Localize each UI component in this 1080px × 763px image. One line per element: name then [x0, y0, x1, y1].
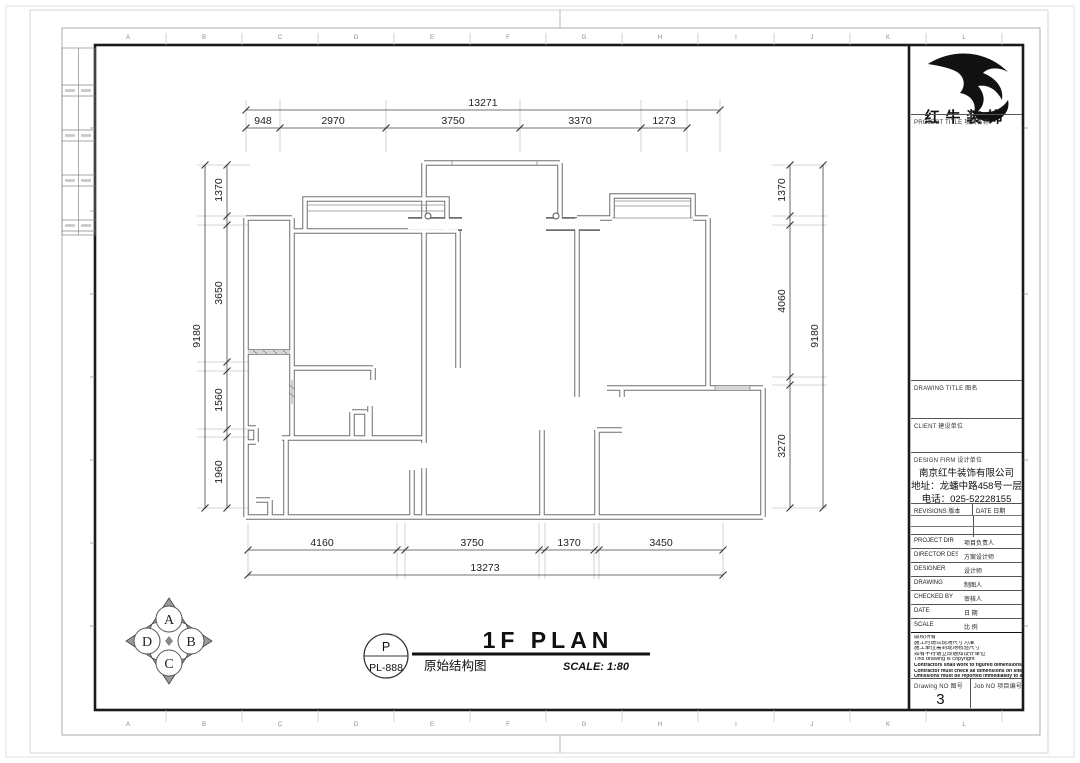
grid-letter: H	[658, 35, 662, 41]
drawing-no-value: 3	[911, 691, 970, 708]
title-block: 红牛装饰 PROJECT TITLE 项目名称 DRAWING TITLE 图名…	[911, 46, 1022, 708]
grid-letter: F	[506, 722, 510, 728]
revisions-label: REVISIONS 版本	[911, 504, 973, 515]
dim-top: 1273	[652, 115, 676, 127]
field-project-dir: PROJECT DIR项目负责人	[911, 534, 1022, 548]
dim-top-total: 13271	[468, 97, 497, 109]
dim-left: 1370	[213, 178, 225, 202]
dim-left: 3650	[213, 281, 225, 305]
grid-letter: K	[886, 35, 890, 41]
column-symbol	[425, 213, 431, 219]
dim-top: 3750	[441, 115, 465, 127]
grid-letter: G	[582, 35, 587, 41]
drawing-number-block: Drawing NO 图号 3 Job NO 项目编号	[911, 678, 1022, 708]
grid-letter: B	[202, 35, 206, 41]
grid-ruler-bottom: A B C D E F G H I J K L	[126, 710, 1002, 728]
notes-block: 版权所有 施工时请以现场尺寸为准 施工单位需到现场核验尺寸 如有不符请立即通知设…	[911, 632, 1022, 678]
revision-strip	[62, 48, 95, 235]
compass-label-a: A	[164, 613, 175, 628]
compass-label-c: C	[164, 657, 173, 672]
grid-letter: L	[962, 35, 966, 41]
job-no-label: Job NO 项目编号	[971, 679, 1022, 690]
compass-label-b: B	[186, 635, 195, 650]
plan-title: 1F PLAN	[483, 627, 614, 653]
client-label: CLIENT 建设单位	[911, 418, 1022, 429]
project-title-label: PROJECT TITLE 项目名称	[911, 114, 1022, 125]
dim-top: 2970	[321, 115, 345, 127]
drawing-title-bar: P PL-888 1F PLAN 原始结构图 SCALE: 1:80	[364, 627, 650, 678]
grid-letter: C	[278, 35, 283, 41]
dim-left: 1960	[213, 460, 225, 484]
grid-letter: I	[735, 35, 737, 41]
grid-letter: F	[506, 35, 510, 41]
field-designer: DESIGNER设计师	[911, 562, 1022, 576]
sheet-ref-top: P	[382, 640, 390, 654]
grid-letter: L	[962, 722, 966, 728]
revisions-header: REVISIONS 版本 DATE 日期	[911, 504, 1022, 515]
compass-label-d: D	[142, 635, 152, 650]
floor-plan-walls	[246, 160, 763, 517]
grid-letter: A	[126, 722, 130, 728]
dim-right: 3270	[776, 434, 788, 458]
company-name: 南京红牛装饰有限公司	[911, 467, 1022, 480]
grid-letter: K	[886, 722, 890, 728]
grid-letter: E	[430, 722, 434, 728]
grid-letter: J	[811, 722, 814, 728]
compass-center-diamond	[165, 636, 173, 646]
dim-top: 948	[254, 115, 272, 127]
field-scale: SCALE比 例	[911, 618, 1022, 632]
grid-letter: B	[202, 722, 206, 728]
dim-bottom-total: 13273	[470, 562, 499, 574]
dim-right-total: 9180	[809, 324, 821, 348]
dim-right: 1370	[776, 178, 788, 202]
dim-left: 1560	[213, 388, 225, 412]
grid-letter: H	[658, 722, 662, 728]
plan-scale: SCALE: 1:80	[563, 661, 630, 673]
grid-letter: D	[354, 722, 359, 728]
grid-letter: C	[278, 722, 283, 728]
drawing-no-label: Drawing NO 图号	[911, 679, 970, 690]
design-firm-label: DESIGN FIRM 设计单位	[911, 452, 1022, 463]
dim-top: 3370	[568, 115, 592, 127]
dim-bottom: 1370	[557, 537, 581, 549]
field-date: DATE日 期	[911, 604, 1022, 618]
dim-left-total: 9180	[191, 324, 203, 348]
dim-bottom: 3750	[460, 537, 484, 549]
grid-ruler-top: A B C D E F G H I J K L	[126, 33, 1002, 45]
dim-bottom: 4160	[310, 537, 334, 549]
sheet-ref-bottom: PL-888	[369, 662, 403, 674]
field-director: DIRECTOR DESI方案设计师	[911, 548, 1022, 562]
grid-letter: I	[735, 722, 737, 728]
revisions-date-label: DATE 日期	[973, 504, 1005, 515]
grid-letter: A	[126, 35, 130, 41]
field-checked-by: CHECKED BY审核人	[911, 590, 1022, 604]
column-symbol	[553, 213, 559, 219]
plan-subtitle-cn: 原始结构图	[424, 658, 487, 673]
grid-letter: D	[354, 35, 359, 41]
drawing-sheet: A B C D E F G H I J K L A B C D E F G H …	[0, 0, 1080, 763]
dim-bottom: 3450	[649, 537, 673, 549]
grid-letter: G	[582, 722, 587, 728]
grid-letter: E	[430, 35, 434, 41]
company-address: 地址：龙蟠中路458号一层	[911, 480, 1022, 493]
revision-row	[911, 515, 1022, 526]
drawing-title-label: DRAWING TITLE 图名	[911, 380, 1022, 391]
grid-letter: J	[811, 35, 814, 41]
compass: A B C D	[126, 598, 212, 684]
field-drawing: DRAWING制图人	[911, 576, 1022, 590]
dim-right: 4060	[776, 289, 788, 313]
